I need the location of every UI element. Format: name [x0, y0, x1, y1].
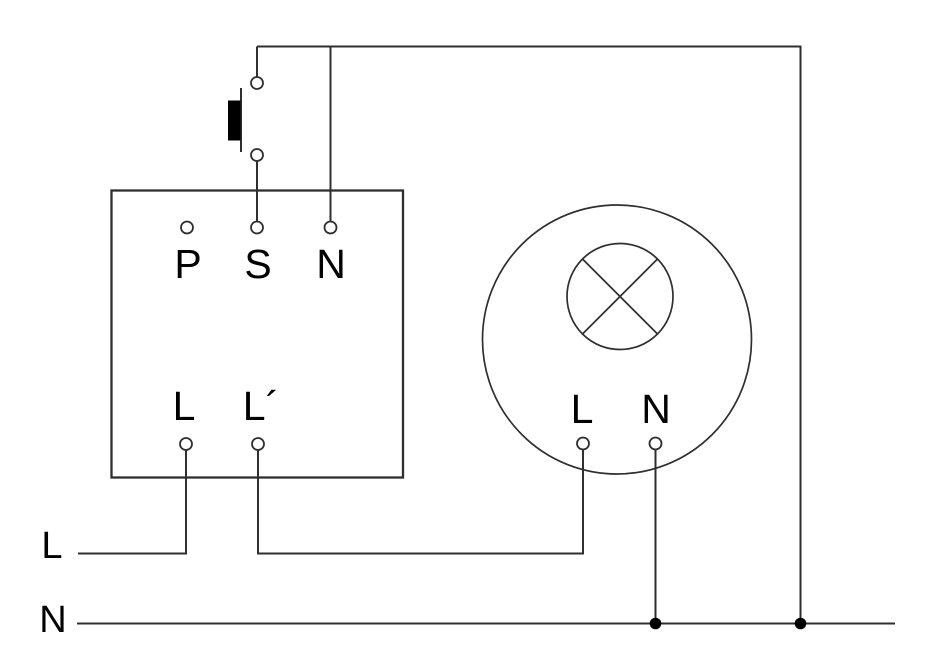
terminal-l-prime — [252, 438, 264, 450]
lamp-terminal-l — [577, 438, 589, 450]
circuit-svg: P S N L L´ L N L N — [0, 0, 925, 658]
terminal-n — [325, 222, 337, 234]
solid-group — [228, 101, 806, 630]
lamp-body-circle — [483, 205, 752, 474]
pushbutton-terminal-bottom — [251, 149, 263, 161]
wire-group — [77, 47, 895, 624]
label-terminal-p: P — [174, 241, 201, 287]
pushbutton-terminal-top — [251, 77, 263, 89]
terminal-l — [180, 438, 192, 450]
terminal-s — [251, 222, 263, 234]
lamp-symbol-icon — [483, 205, 752, 474]
junction-dot-lamp-n — [650, 618, 662, 630]
label-lamp-n: N — [641, 386, 671, 432]
wire-top-and-right — [257, 47, 801, 624]
label-terminal-n: N — [316, 241, 346, 287]
wire-l-prime-to-lamp — [258, 450, 583, 554]
label-box-l: L — [173, 383, 196, 429]
junction-dot-right — [795, 618, 807, 630]
label-supply-l: L — [41, 525, 62, 567]
pushbutton-actuator-icon — [228, 101, 241, 141]
label-group: P S N L L´ L N L N — [39, 241, 671, 641]
label-supply-n: N — [39, 599, 66, 641]
lamp-bulb-cross — [583, 259, 658, 334]
label-box-l-prime: L´ — [243, 383, 279, 429]
label-terminal-s: S — [244, 241, 271, 287]
wiring-diagram: P S N L L´ L N L N — [0, 0, 925, 658]
terminal-p — [181, 222, 193, 234]
wire-l-supply — [78, 450, 186, 554]
lamp-terminal-n — [650, 438, 662, 450]
label-lamp-l: L — [571, 386, 594, 432]
